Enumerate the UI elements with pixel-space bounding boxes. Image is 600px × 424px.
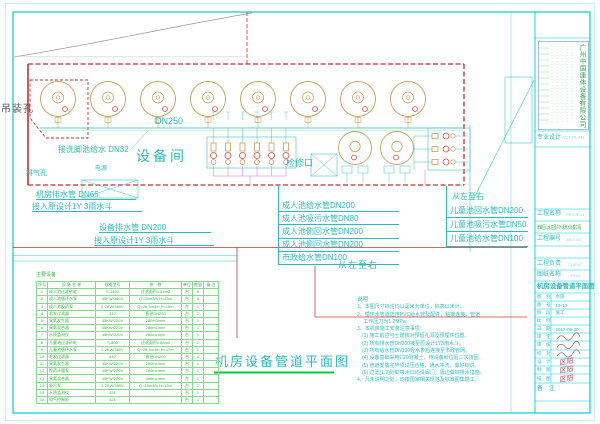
cell-unit: 台: [182, 397, 193, 404]
cell-model: 45KW/220V: [96, 325, 130, 332]
cell-unit: 台: [182, 332, 193, 339]
pipe-label: 儿童池回水管DN200: [447, 204, 528, 218]
info-row: 图 号 19-10: [535, 301, 590, 309]
info-row: 比 例: [535, 317, 590, 325]
cell-unit: 台: [182, 346, 193, 353]
signature-row: 审 核: [535, 341, 590, 349]
table-row: 14 吸污泵 2.2KW/380V Q=10m3/h,H=15m 台 1: [37, 382, 219, 389]
table-row: 4 毛发过滤器 442 直径DN250 台 1: [37, 310, 219, 317]
info-label: 比 例: [537, 318, 551, 324]
cell-no: 9: [37, 346, 48, 353]
col-header: 数量: [193, 282, 204, 289]
hoist-hole-label: 吊装孔: [1, 105, 34, 115]
info-label: 阶 段: [537, 310, 551, 316]
pipe-label: 成人池侧回水管DN200: [279, 225, 399, 238]
cell-no: 14: [37, 382, 48, 389]
project-number-label: 工程编号: [537, 236, 561, 242]
info-label: 图 号: [537, 302, 551, 308]
cell-name: 成人池过滤砂缸: [48, 289, 96, 296]
cell-name: 电气控制柜: [48, 397, 96, 404]
cell-qty: 1: [193, 397, 204, 404]
plan-title: 机房设备管道平面图: [215, 355, 350, 368]
signature-label: 审 定: [537, 334, 551, 340]
cell-remark: [204, 310, 219, 317]
cell-param: Q=28.3m3/h,H=18m: [130, 303, 182, 310]
table-row: 5 臭氧发生器 45KW/220V 280m3/min 台 1: [37, 317, 219, 324]
cell-param: 过滤面积1.54m2: [130, 289, 182, 296]
pipe-label: 成人池给水管DN200: [279, 199, 399, 212]
info-rows: 图 别 水施 图 号 19-10 阶 段 施工 比 例 日 期 2013-09-…: [535, 293, 590, 333]
col-header: 规格型号: [96, 282, 130, 289]
cell-param: Q=28.3m3/h,H=17m: [130, 346, 182, 353]
cell-no: 3: [37, 303, 48, 310]
cell-no: 1: [37, 289, 48, 296]
cell-param: [130, 389, 182, 396]
cell-qty: 1: [193, 325, 204, 332]
cell-name: 臭氧发生器: [48, 317, 96, 324]
note-line: (1) 施工前应与土建核对预留孔洞及预埋件位置。: [357, 333, 525, 340]
drain-label: 设备排水管 DN200: [99, 224, 211, 233]
cell-no: 4: [37, 310, 48, 317]
notes-block: 说明 1、本图尺寸标注均以毫米为单位，标高以米计。2、循环水管道选用PVC给水管…: [357, 297, 525, 385]
table-row: 13 臭氧混合器 45KW/220V 380mL/min 台 1: [37, 375, 219, 382]
cell-unit: 台: [182, 361, 193, 368]
cell-name: 毛发过滤器: [48, 353, 96, 360]
col-header: 序号: [37, 282, 48, 289]
drain-label: 机房排水管 DN65: [36, 191, 136, 200]
table-row: 9 儿童池循环水泵 2.2KW/380V Q=28.3m3/h,H=17m 台 …: [37, 346, 219, 353]
cell-remark: [204, 389, 219, 396]
cell-name: 儿童池过滤砂缸: [48, 339, 96, 346]
cell-param: 280mL/min: [130, 361, 182, 368]
left-to-right-label: 从左至右: [338, 261, 378, 270]
cell-name: 吸污泵: [48, 382, 96, 389]
signature-rows: 审 定 审 核 校 对 设 计 区阳 制 图 区阳 描 图 区阳: [535, 333, 590, 383]
equipment-room-boundary: [28, 64, 464, 185]
cell-qty: 1: [193, 332, 204, 339]
child-pipe-label-stack: 儿童池回水管DN200儿童池吸污水管DN50儿童池给水管DN100: [446, 186, 528, 247]
cell-no: 6: [37, 325, 48, 332]
cell-param: 280mL/min: [130, 332, 182, 339]
cell-model: 442: [96, 353, 130, 360]
cell-no: 16: [37, 397, 48, 404]
cell-name: 投药计量泵: [48, 368, 96, 375]
cell-qty: 1: [193, 368, 204, 375]
cell-param: 280mL/min: [130, 368, 182, 375]
cell-unit: 台: [182, 296, 193, 303]
equipment-table-title: 主要设备: [36, 273, 56, 278]
signature-row: 描 图 区阳: [535, 375, 590, 383]
sheetname-label-en: TITLE: [570, 274, 581, 278]
sheetname-label: 图纸名称: [537, 272, 561, 278]
pipe-label: 儿童池给水管DN100: [447, 232, 528, 246]
cell-remark: [204, 332, 219, 339]
cell-qty: 1: [193, 382, 204, 389]
table-row: 12 投药计量泵 45KW/220V 280mL/min 台 1: [37, 368, 219, 375]
cell-remark: [204, 353, 219, 360]
cell-unit: 台: [182, 382, 193, 389]
cell-model: 431: [96, 389, 130, 396]
cell-qty: 5: [193, 296, 204, 303]
cell-model: 45KW/220V: [96, 375, 130, 382]
cell-name: 儿童池循环水泵: [48, 346, 96, 353]
cell-param: 直径DN250: [130, 310, 182, 317]
signature-label: 审 核: [537, 342, 551, 348]
design-value: ACT PLAN: [562, 136, 584, 141]
access-hatch-label: 检修口: [286, 159, 313, 168]
cell-unit: 台: [182, 389, 193, 396]
cell-remark: [204, 339, 219, 346]
cell-name: 臭氧混合器: [48, 375, 96, 382]
project-label-en: PROJECT: [566, 213, 585, 217]
remark-label: 备 注: [537, 386, 555, 392]
cell-remark: [204, 303, 219, 310]
cell-qty: 2: [193, 339, 204, 346]
cell-no: 11: [37, 361, 48, 368]
cell-model: 45KW/220V: [96, 332, 130, 339]
cell-model: S-1400: [96, 289, 130, 296]
cell-qty: 1: [193, 303, 204, 310]
cell-model: 45KW/220V: [96, 361, 130, 368]
note-line: (2) 所有排水管DN200接至原设计1Y3雨水斗。: [357, 341, 525, 348]
vent-hole-label: 排气孔: [26, 170, 47, 177]
adult-pipe-label-stack: 成人池给水管DN200成人池吸污水管DN80成人池侧回水管DN200成人池侧回水…: [278, 186, 399, 265]
cell-qty: 1: [193, 361, 204, 368]
info-value: 水施: [556, 294, 565, 300]
table-header-row: 序号 设 备 名 称 规格型号 参 数 单位 数量 备 注: [37, 282, 219, 289]
drain-label: 接入原设计1Y 3雨水斗: [94, 237, 214, 246]
note-line: 1、本图尺寸标注均以毫米为单位，标高以米计。: [357, 304, 525, 311]
manager-label-en: CLIENT: [568, 263, 582, 267]
project-name: 增城区山水庄园户外泳池水处理工程: [537, 224, 581, 231]
table-row: 10 毛发过滤器 442 直径DN200 台 1: [37, 353, 219, 360]
cell-qty: 1: [193, 353, 204, 360]
signature-value: 区阳: [558, 373, 573, 385]
cell-qty: 5: [193, 289, 204, 296]
info-label: 日 期: [537, 326, 551, 332]
room-label: 设备间: [136, 149, 187, 163]
cell-remark: [204, 289, 219, 296]
col-header: 备 注: [204, 282, 219, 289]
pipe-label: 儿童池吸污水管DN50: [447, 218, 528, 232]
cell-remark: [204, 346, 219, 353]
cell-no: 8: [37, 339, 48, 346]
col-header: 设 备 名 称: [48, 282, 96, 289]
cell-remark: [204, 375, 219, 382]
table-row: 15 水质监测仪 431 台 1: [37, 389, 219, 396]
cell-remark: [204, 368, 219, 375]
cell-name: 成人池投药泵: [48, 303, 96, 310]
cell-unit: 台: [182, 289, 193, 296]
table-row: 11 臭氧发生器 45KW/220V 280mL/min 台 1: [37, 361, 219, 368]
cell-remark: [204, 361, 219, 368]
table-row: 3 成人池投药泵 2.2KW/380V Q=28.3m3/h,H=18m 台 1: [37, 303, 219, 310]
cell-name: 毛发过滤器: [48, 310, 96, 317]
project-label: 工程名称: [537, 211, 561, 217]
info-row: 阶 段 施工: [535, 309, 590, 317]
cell-model: 2.2KW/380V: [96, 346, 130, 353]
cell-name: 成人池循环水泵: [48, 296, 96, 303]
cell-no: 2: [37, 296, 48, 303]
cell-no: 5: [37, 317, 48, 324]
cell-model: 45KW/220V: [96, 368, 130, 375]
cell-model: 2.2KW/380V: [96, 303, 130, 310]
info-label: 图 别: [537, 294, 551, 300]
cell-param: Q=50m3/h,H=23m: [130, 296, 182, 303]
cell-qty: 1: [193, 317, 204, 324]
table-row: 6 臭氧混合器 45KW/220V 280mL/min 台 1: [37, 325, 219, 332]
cell-model: 421: [96, 397, 130, 404]
cell-model: 2.2KW/380V: [96, 382, 130, 389]
cell-model: 45KW/220V: [96, 317, 130, 324]
cell-qty: 2: [193, 346, 204, 353]
manager-label: 工程负责: [537, 261, 561, 267]
cell-name: 水质监测仪: [48, 332, 96, 339]
table-row: 1 成人池过滤砂缸 S-1400 过滤面积1.54m2 台 5: [37, 289, 219, 296]
info-row: 图 别 水施: [535, 293, 590, 301]
cell-param: 直径DN200: [130, 353, 182, 360]
col-header: 单位: [182, 282, 193, 289]
design-label: 专业设计: [537, 135, 561, 141]
table-row: 2 成人池循环水泵 45KW/380V Q=50m3/h,H=23m 台 5: [37, 296, 219, 303]
cell-name: 臭氧发生器: [48, 361, 96, 368]
cell-name: 臭氧混合器: [48, 325, 96, 332]
footwash-pipe-label: 接洗脚池给水 DN32: [58, 146, 129, 154]
titleblock-drawing-title: 机房设备管道平面图: [537, 284, 595, 290]
cell-qty: 1: [193, 375, 204, 382]
signature-row: 审 定: [535, 333, 590, 341]
cell-param: Q=10m3/h,H=15m: [130, 382, 182, 389]
cell-unit: 台: [182, 325, 193, 332]
pipe-label: 成人池侧回水管DN200: [279, 239, 399, 252]
company-name: 广州中国康体设备有限公司: [576, 44, 586, 128]
cell-unit: 台: [182, 368, 193, 375]
table-row: 7 水质监测仪 45KW/220V 280mL/min 台 1: [37, 332, 219, 339]
info-value: 2013-09-30: [556, 327, 579, 332]
table-row: 8 儿童池过滤砂缸 S-800 过滤面积0.68m2 台 2: [37, 339, 219, 346]
project-number-value: 0407-80: [566, 238, 581, 242]
info-value: 施工: [556, 310, 565, 316]
col-header: 参 数: [130, 282, 182, 289]
info-value: 19-10: [556, 303, 568, 308]
cell-remark: [204, 296, 219, 303]
note-line: (5) 管道安装完毕须试压合格，通水冲洗，做好标识。: [357, 363, 525, 370]
cell-remark: [204, 317, 219, 324]
signature-label: 制 图: [537, 367, 551, 373]
cell-unit: 台: [182, 310, 193, 317]
cell-remark: [204, 325, 219, 332]
note-line: (4) 设备基础采用C20混凝土，待设备就位后二次浇固。: [357, 355, 525, 362]
equipment-table: 序号 设 备 名 称 规格型号 参 数 单位 数量 备 注 1 成人池过滤砂缸 …: [36, 281, 219, 404]
cell-no: 10: [37, 353, 48, 360]
cell-unit: 台: [182, 353, 193, 360]
cell-remark: [204, 397, 219, 404]
main-pipe-label: DN250: [155, 117, 183, 126]
cell-param: 380mL/min: [130, 375, 182, 382]
drain-label: 接入原设计1Y 3雨水斗: [32, 203, 142, 212]
drawing-sheet: 吊装孔 DN250 接洗脚池给水 DN32 设备间 电源 排气孔 检修口 机房排…: [0, 0, 600, 424]
cell-unit: 台: [182, 339, 193, 346]
cell-unit: 台: [182, 375, 193, 382]
cell-no: 7: [37, 332, 48, 339]
table-row: 16 电气控制柜 421 台 1: [37, 397, 219, 404]
cell-qty: 1: [193, 389, 204, 396]
cell-model: 45KW/380V: [96, 296, 130, 303]
cell-name: 水质监测仪: [48, 389, 96, 396]
cell-param: 280m3/min: [130, 317, 182, 324]
signature-label: 校 对: [537, 351, 551, 357]
cell-param: 过滤面积0.68m2: [130, 339, 182, 346]
note-line: 4、凡未说明之处，均按国家相关规范及标准图集施工。: [357, 377, 525, 384]
cell-no: 13: [37, 375, 48, 382]
cell-unit: 台: [182, 303, 193, 310]
cell-qty: 1: [193, 310, 204, 317]
cell-model: S-800: [96, 339, 130, 346]
signature-label: 设 计: [537, 359, 551, 365]
cell-no: 12: [37, 368, 48, 375]
cell-model: 442: [96, 310, 130, 317]
signature-label: 描 图: [537, 376, 551, 382]
info-row: 日 期 2013-09-30: [535, 325, 590, 333]
power-label: 电源: [95, 166, 107, 172]
cell-param: 280mL/min: [130, 325, 182, 332]
cell-param: [130, 397, 182, 404]
note-line: 2、循环水管道选用PVC给水管及配件，粘接连接，管道: [357, 312, 525, 319]
cell-no: 15: [37, 389, 48, 396]
cell-remark: [204, 382, 219, 389]
pipe-label: 成人池吸污水管DN80: [279, 212, 399, 225]
cell-unit: 台: [182, 317, 193, 324]
